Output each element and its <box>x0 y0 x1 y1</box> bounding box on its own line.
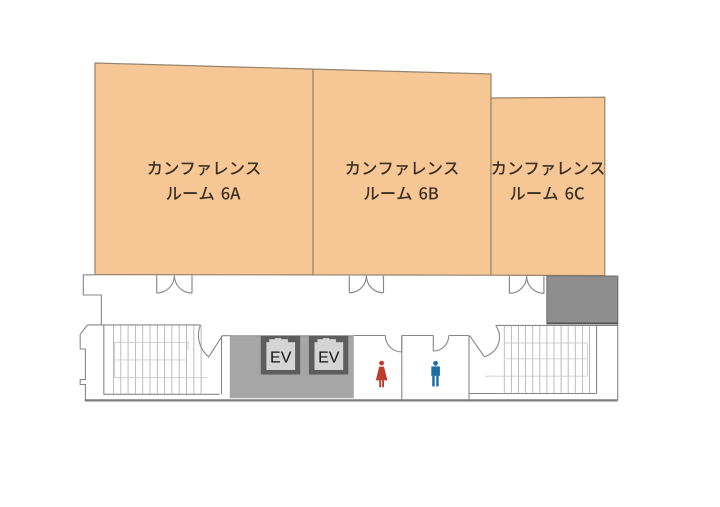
svg-text:EV: EV <box>270 350 292 367</box>
svg-text:EV: EV <box>318 350 340 367</box>
